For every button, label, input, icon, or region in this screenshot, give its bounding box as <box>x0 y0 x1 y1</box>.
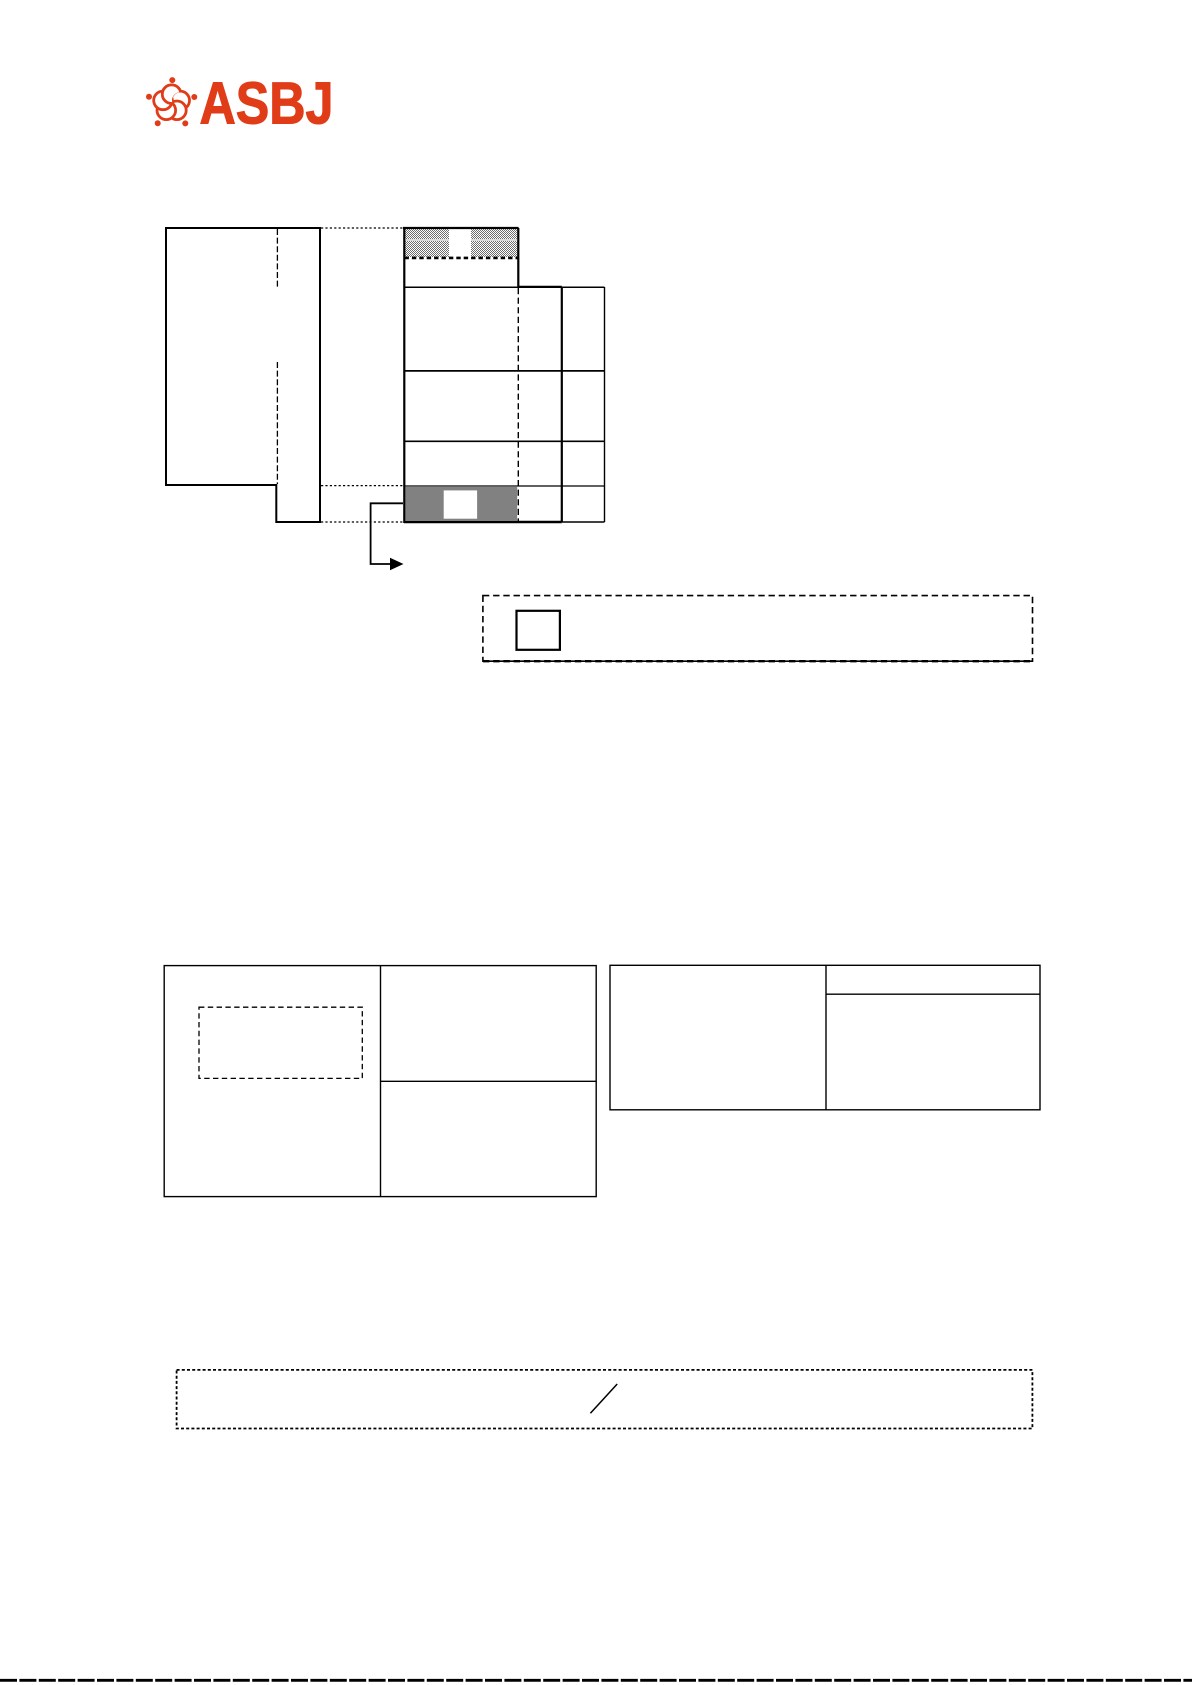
svg-text:ASBJ: ASBJ <box>200 71 334 137</box>
